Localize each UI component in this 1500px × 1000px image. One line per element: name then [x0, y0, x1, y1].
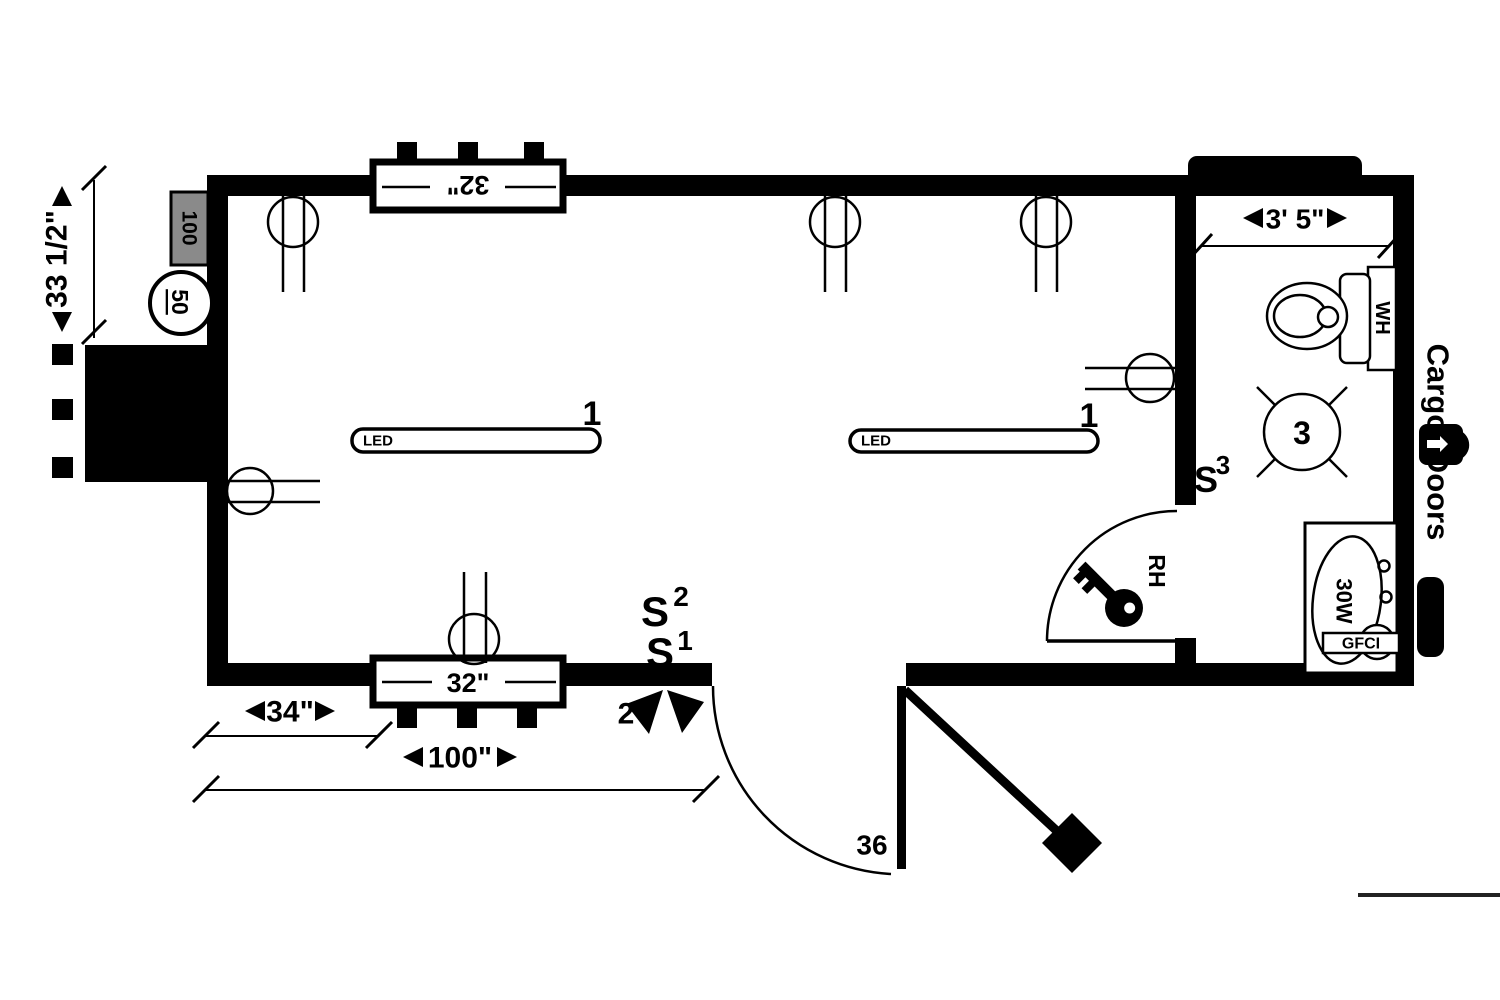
wall-bath-partition-stub [1175, 638, 1196, 668]
window-bottom-mullion-square [397, 708, 417, 728]
arrow-left-icon [1243, 208, 1263, 228]
led-circuit-label: 1 [583, 395, 602, 433]
switch-superscript: 1 [677, 625, 693, 656]
ac-unit-label: A/C [134, 379, 178, 448]
dimension-bathroom-width-label: 3' 5" [1266, 204, 1325, 235]
arrow-right-icon [315, 701, 335, 721]
window-top-size-label: 32" [447, 170, 490, 200]
sconce-circle [227, 468, 273, 514]
entry-door-width-label: 36 [856, 830, 887, 861]
dimension-bathroom-width: 3' 5" [1192, 204, 1398, 259]
exterior-light-circuit-label: 2 [618, 698, 635, 731]
wall-left-upper [207, 175, 228, 345]
sconce-light [810, 196, 860, 292]
window-bottom-size-label: 32" [447, 668, 490, 698]
led-fixture-label: LED [861, 433, 891, 450]
sconce-light [1021, 196, 1071, 292]
wall-bottom-left [207, 663, 375, 686]
sconce-light [449, 572, 499, 664]
window-bottom-mullion-square [517, 708, 537, 728]
cargo-doors-label: Cargo Doors [1421, 344, 1456, 541]
led-circuit-label: 1 [1080, 397, 1099, 435]
ac-coil-square [52, 457, 73, 478]
switch-superscript: 2 [673, 581, 689, 612]
vanity: 30W GFCI [1305, 523, 1399, 673]
arrow-up-icon [52, 186, 72, 206]
sconce-light [1085, 354, 1175, 402]
floor-plan-canvas: 32" 32" 100 50 A/C 33 1/2" 34" [0, 0, 1500, 1000]
dimension-window-offset-label: 34" [266, 696, 314, 729]
exhaust-fan-circuit-label: 3 [1293, 415, 1311, 451]
arrow-down-icon [52, 312, 72, 332]
led-fixture-label: LED [363, 433, 393, 450]
dimension-window-offset: 34" [193, 696, 392, 749]
switch-superscript: 3 [1216, 450, 1230, 480]
arrow-left-icon [245, 701, 265, 721]
floor-plan: 32" 32" 100 50 A/C 33 1/2" 34" [0, 0, 1500, 1000]
entry-door: 36 [713, 686, 1102, 874]
sconce-light [268, 196, 318, 292]
ac-coil-square [52, 399, 73, 420]
cargo-door-pull [1417, 577, 1444, 657]
exterior-light: 2 [618, 690, 704, 734]
sconce-light [227, 468, 320, 514]
arrow-right-icon [1327, 208, 1347, 228]
switch-s3: S 3 [1194, 450, 1230, 500]
wall-left-lower [207, 482, 228, 686]
switch-letter: S [646, 629, 674, 676]
entry-door-strut [905, 690, 1058, 832]
window-bottom: 32" [373, 658, 563, 728]
wall-bath-partition [1175, 196, 1196, 505]
exhaust-fan-tick [1329, 387, 1347, 405]
sconce-circle [810, 197, 860, 247]
window-top: 32" [373, 142, 563, 210]
electrical-panel-label: 100 [178, 210, 201, 245]
bath-door-hand-label: RH [1144, 554, 1170, 587]
page-edge-line [1358, 893, 1500, 897]
entry-door-leaf [897, 686, 906, 869]
exhaust-fan: 3 [1257, 387, 1347, 477]
sconce-circle [1126, 354, 1174, 402]
toilet [1267, 274, 1370, 363]
bath-door: RH [1047, 511, 1177, 641]
toilet-flush [1318, 307, 1338, 327]
exterior-light-wing-icon [667, 690, 704, 733]
switch-letter: S [641, 588, 669, 635]
exhaust-fan-tick [1329, 459, 1347, 477]
exhaust-fan-tick [1257, 387, 1275, 405]
key-icon [1068, 552, 1151, 635]
vanity-size-label: 30W [1332, 578, 1357, 623]
outlet-50-label: 50 [167, 289, 193, 315]
water-heater-label: WH [1371, 301, 1393, 334]
dimension-door-offset: 100" [193, 742, 719, 803]
arrow-left-icon [403, 747, 423, 767]
switch-letter: S [1194, 459, 1218, 500]
gfci-outlet-label: GFCI [1342, 636, 1380, 653]
sconce-circle [268, 197, 318, 247]
water-heater: WH [1368, 267, 1396, 370]
window-bottom-mullion-square [457, 708, 477, 728]
dimension-left-height: 33 1/2" [41, 166, 107, 344]
dimension-left-height-label: 33 1/2" [41, 210, 74, 308]
arrow-right-icon [497, 747, 517, 767]
wall-bottom-mid [563, 663, 712, 686]
exhaust-fan-tick [1257, 459, 1275, 477]
led-fixture-1: LED 1 [352, 395, 601, 452]
led-fixture-2: LED 1 [850, 397, 1098, 452]
dimension-door-offset-label: 100" [428, 742, 492, 775]
ac-coil-square [52, 344, 73, 365]
sconce-circle [1021, 197, 1071, 247]
